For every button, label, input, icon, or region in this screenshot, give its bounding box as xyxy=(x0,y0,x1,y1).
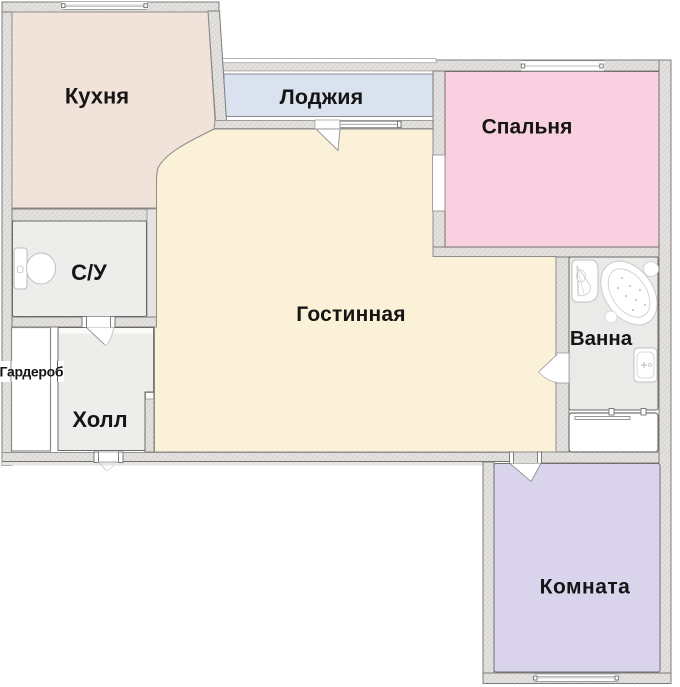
svg-text:С/У: С/У xyxy=(71,260,107,285)
svg-text:Комната: Комната xyxy=(540,576,631,599)
svg-text:Гостинная: Гостинная xyxy=(296,303,405,326)
svg-text:Холл: Холл xyxy=(72,407,127,432)
svg-text:Спальня: Спальня xyxy=(482,116,573,139)
svg-text:Гардероб: Гардероб xyxy=(0,364,64,380)
svg-text:Ванна: Ванна xyxy=(570,327,633,350)
svg-text:Лоджия: Лоджия xyxy=(280,85,364,109)
svg-text:Кухня: Кухня xyxy=(65,84,129,109)
